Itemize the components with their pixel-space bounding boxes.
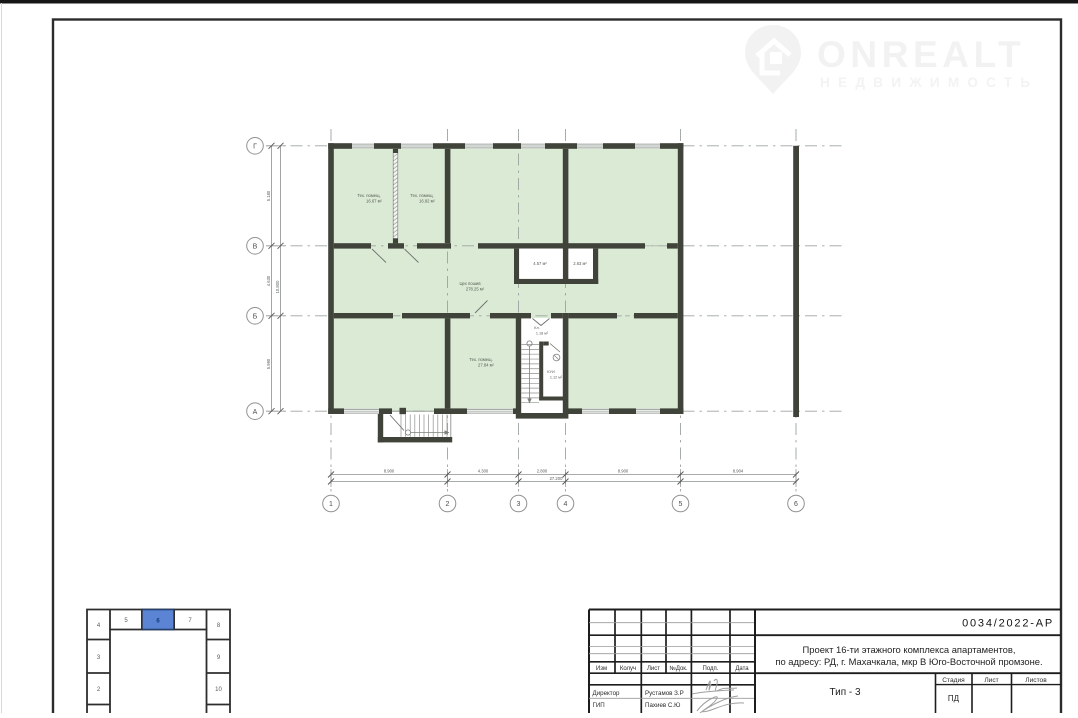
svg-text:Рустамов З.Р: Рустамов З.Р <box>645 690 684 697</box>
svg-text:Проект 16-ти этажного комплекс: Проект 16-ти этажного комплекса апартаме… <box>803 644 1016 655</box>
svg-text:9: 9 <box>217 655 221 661</box>
svg-text:Тип - 3: Тип - 3 <box>829 687 861 698</box>
svg-text:10.800: 10.800 <box>275 280 280 293</box>
svg-text:5.990: 5.990 <box>266 358 271 369</box>
svg-text:4.630: 4.630 <box>266 275 271 286</box>
svg-text:Дата: Дата <box>735 666 749 672</box>
svg-text:3: 3 <box>97 655 101 661</box>
svg-text:Г: Г <box>253 143 257 150</box>
svg-text:27.84 м²: 27.84 м² <box>478 362 495 367</box>
svg-text:Тех. помещ.: Тех. помещ. <box>469 357 492 362</box>
svg-text:16.67 м²: 16.67 м² <box>366 198 383 203</box>
svg-text:6: 6 <box>794 501 798 508</box>
svg-text:4.57 м²: 4.57 м² <box>533 261 547 266</box>
svg-text:7: 7 <box>188 618 192 624</box>
svg-text:2.800: 2.800 <box>537 469 548 474</box>
svg-text:Тех. помещ.: Тех. помещ. <box>357 193 380 198</box>
svg-text:8: 8 <box>217 623 221 629</box>
svg-text:Изм: Изм <box>596 666 607 672</box>
svg-text:Цех пошив: Цех пошив <box>459 281 481 286</box>
svg-text:Тех. помещ.: Тех. помещ. <box>410 193 433 198</box>
svg-text:Листов: Листов <box>1025 677 1047 684</box>
svg-text:ПД: ПД <box>948 694 960 703</box>
svg-text:4: 4 <box>564 501 568 508</box>
svg-text:5.180: 5.180 <box>266 190 271 201</box>
svg-text:2: 2 <box>446 501 450 508</box>
svg-text:27.200: 27.200 <box>550 476 563 481</box>
svg-text:№Док.: №Док. <box>669 665 688 672</box>
svg-text:5: 5 <box>679 501 683 508</box>
svg-text:НЕДВИЖИМОСТЬ: НЕДВИЖИМОСТЬ <box>820 75 1038 90</box>
svg-text:278.25 м²: 278.25 м² <box>466 286 485 291</box>
svg-text:2.63 м²: 2.63 м² <box>573 261 587 266</box>
svg-text:по адресу: РД, г. Махачкала, м: по адресу: РД, г. Махачкала, мкр В Юго-В… <box>775 656 1042 667</box>
svg-text:ONREALT: ONREALT <box>817 34 1025 75</box>
svg-text:А: А <box>253 409 258 416</box>
svg-text:Колуч: Колуч <box>620 666 636 672</box>
svg-text:Кл.: Кл. <box>534 326 539 330</box>
svg-text:16.82 м²: 16.82 м² <box>419 198 436 203</box>
svg-text:8.900: 8.900 <box>384 469 395 474</box>
svg-text:8.904: 8.904 <box>733 469 744 474</box>
svg-text:1: 1 <box>329 501 333 508</box>
svg-text:0034/2022-АР: 0034/2022-АР <box>962 618 1054 630</box>
svg-text:8.900: 8.900 <box>618 469 629 474</box>
svg-text:Директор: Директор <box>593 690 621 697</box>
svg-text:Стадия: Стадия <box>942 677 965 684</box>
svg-text:1.18 м²: 1.18 м² <box>536 331 549 335</box>
svg-text:Лист: Лист <box>647 666 660 672</box>
svg-text:4.300: 4.300 <box>478 469 489 474</box>
svg-text:Б: Б <box>253 313 258 320</box>
svg-text:1.12 м²: 1.12 м² <box>550 375 563 379</box>
svg-text:Лист: Лист <box>984 677 998 684</box>
svg-text:10: 10 <box>215 687 222 693</box>
svg-text:КУИ: КУИ <box>547 370 555 374</box>
svg-text:В: В <box>253 243 258 250</box>
svg-text:Подп.: Подп. <box>703 666 719 672</box>
svg-text:ГИП: ГИП <box>593 702 605 709</box>
svg-text:2: 2 <box>97 687 101 693</box>
svg-text:Пахиев С.Ю: Пахиев С.Ю <box>645 702 680 709</box>
svg-text:5: 5 <box>124 618 128 624</box>
svg-text:4: 4 <box>97 623 101 629</box>
svg-text:3: 3 <box>517 501 521 508</box>
